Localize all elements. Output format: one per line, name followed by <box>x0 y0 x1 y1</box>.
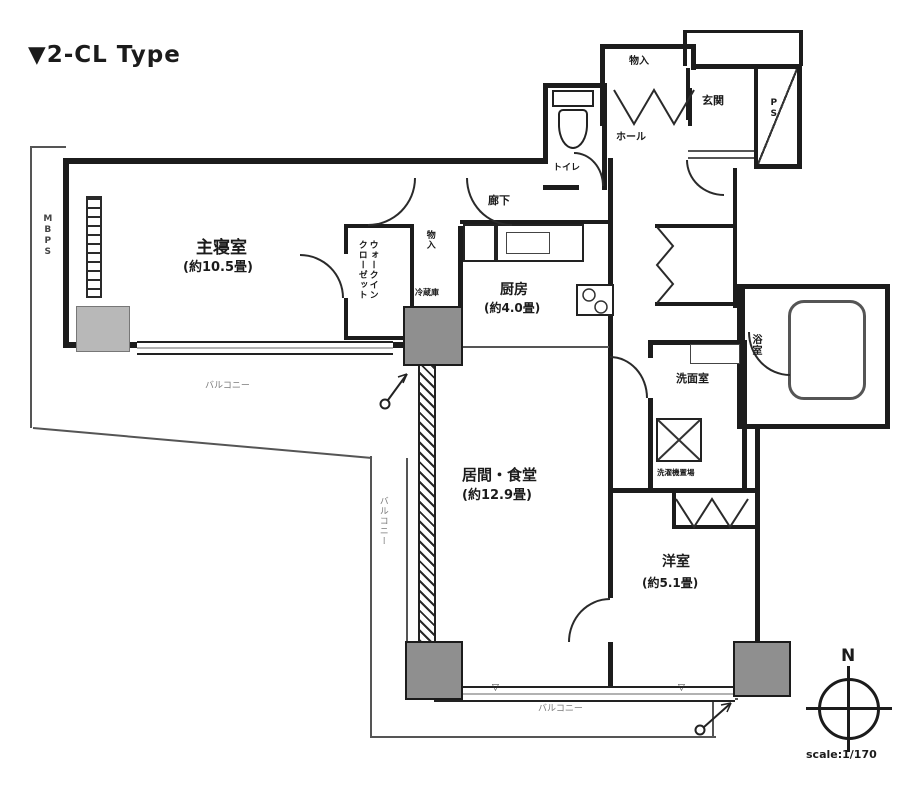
folding-door <box>657 227 673 303</box>
label-storage-hall: 物入 <box>629 56 649 68</box>
folding-door <box>614 90 694 124</box>
wall <box>600 44 696 49</box>
compass-north-label: N <box>841 646 855 666</box>
label-entrance: 玄関 <box>702 94 724 107</box>
balcony-diagonal-rail <box>33 428 372 458</box>
label-western-room: 洋室 <box>662 554 690 571</box>
counter-line <box>463 346 609 348</box>
label-balcony-bottom: バルコニー <box>538 704 583 715</box>
vanity <box>690 344 740 364</box>
wall <box>648 398 653 493</box>
wall <box>797 64 802 169</box>
washer-space-box <box>656 418 702 462</box>
floor-plan: ▼2-CL Type <box>0 0 922 794</box>
balcony-rail <box>30 146 32 428</box>
label-balcony-side: バルコニー <box>377 496 388 546</box>
wall <box>688 88 692 126</box>
label-washer: 洗濯機置場 <box>657 468 695 477</box>
wall <box>600 44 605 92</box>
label-walk-in-closet: ウォークイン クローゼット <box>356 240 378 332</box>
wall <box>885 284 890 429</box>
wall <box>608 158 613 350</box>
label-kitchen: 厨房 <box>500 282 528 299</box>
door-arc <box>610 356 648 398</box>
label-corridor: 廊下 <box>488 194 510 207</box>
balcony-rail <box>370 456 372 738</box>
wall <box>672 492 676 529</box>
wall <box>608 488 760 493</box>
wall <box>737 284 890 289</box>
wall <box>672 525 756 529</box>
window-band <box>137 341 393 355</box>
label-toilet: トイレ <box>553 163 580 174</box>
kitchen-cabinet <box>463 224 496 262</box>
door-arc <box>686 160 724 196</box>
compass-cross <box>847 666 850 752</box>
wall <box>648 340 653 358</box>
column <box>405 641 463 700</box>
wall <box>754 164 802 169</box>
label-fridge: 冷蔵庫 <box>415 288 439 298</box>
wall <box>683 30 803 33</box>
window-band <box>434 686 735 702</box>
door-arc <box>568 598 610 642</box>
label-master-bedroom-size: (約10.5畳) <box>183 260 253 276</box>
label-powder-room: 洗面室 <box>676 372 709 385</box>
wall <box>344 224 348 254</box>
toilet-bowl <box>558 109 588 149</box>
wall <box>344 298 348 340</box>
label-balcony-left: バルコニー <box>205 381 250 392</box>
wall <box>655 302 737 306</box>
wall <box>799 30 803 66</box>
partition-arrow-icon <box>381 374 408 409</box>
wall <box>543 83 607 88</box>
label-kitchen-size: (約4.0畳) <box>484 301 540 315</box>
door-arc <box>368 178 416 226</box>
column <box>733 641 791 697</box>
plan-title: ▼2-CL Type <box>28 42 181 70</box>
entrance-step <box>688 157 754 159</box>
wall <box>543 83 548 163</box>
label-master-bedroom: 主寝室 <box>196 238 247 258</box>
toilet-tank <box>552 90 594 107</box>
label-storage-corridor: 物入 <box>424 230 435 250</box>
label-living-dining-size: (約12.9畳) <box>462 488 532 504</box>
bathtub <box>788 300 866 400</box>
label-living-dining: 居間・食堂 <box>462 466 537 484</box>
folding-door <box>676 499 748 527</box>
window-open-mark: ▽ <box>678 683 685 694</box>
balcony-rail <box>30 146 66 148</box>
fixed-window-hatch <box>418 360 436 654</box>
wall <box>63 158 548 164</box>
wall <box>63 158 69 348</box>
balcony-rail <box>712 700 714 738</box>
wall <box>608 642 613 692</box>
wall <box>683 30 687 66</box>
wall <box>600 88 604 126</box>
label-western-room-size: (約5.1畳) <box>642 576 698 590</box>
column <box>76 306 130 352</box>
scale-label: scale:1/170 <box>806 748 877 761</box>
stove <box>576 284 614 316</box>
label-pipe-space: PS <box>768 98 779 120</box>
kitchen-sink <box>506 232 550 254</box>
side-window-hatch <box>86 196 102 298</box>
balcony-rail <box>370 736 716 738</box>
window-open-mark: ▽ <box>492 683 499 694</box>
label-bath: 浴室 <box>749 334 761 356</box>
label-meter-box: MBPS <box>42 214 53 258</box>
label-hall: ホール <box>616 132 646 144</box>
door-arc <box>300 254 344 298</box>
wall <box>655 224 737 228</box>
entrance-step <box>688 150 754 152</box>
column <box>403 306 463 366</box>
